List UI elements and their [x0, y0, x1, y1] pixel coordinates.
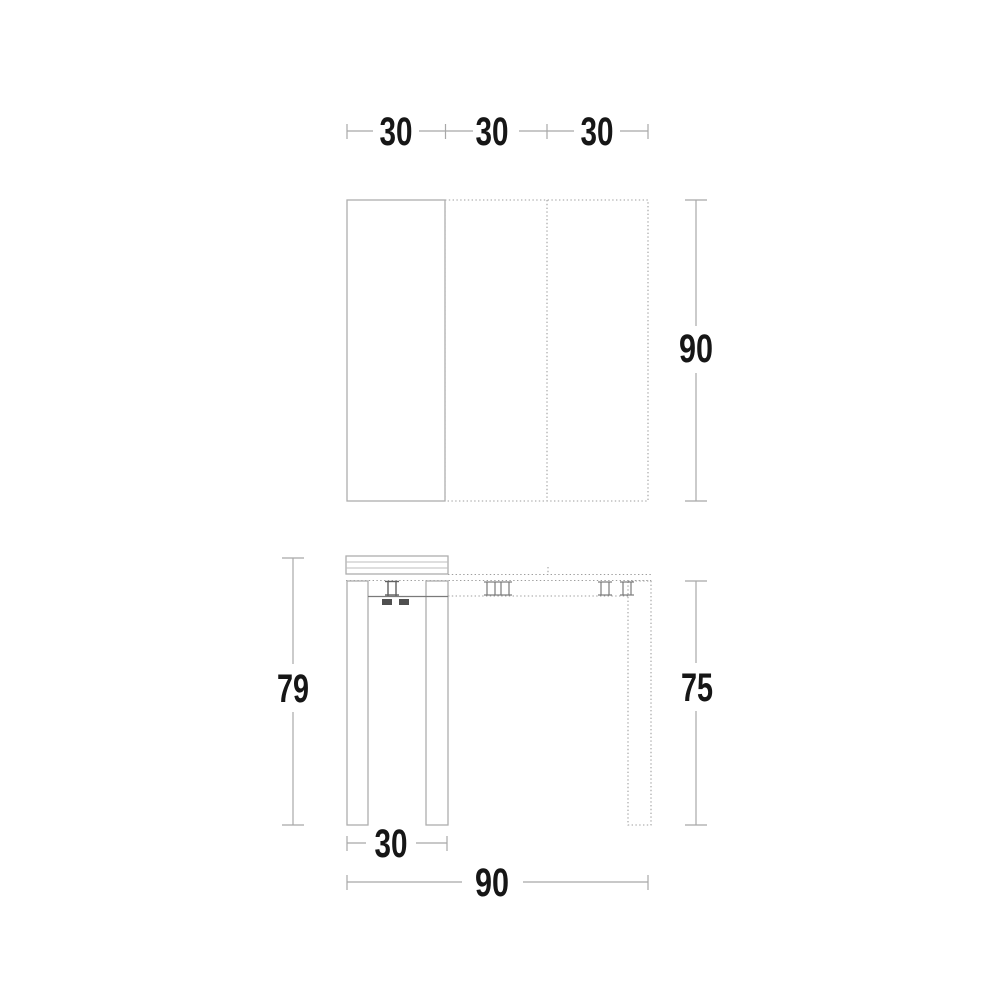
- dim-closed-width: 30: [347, 822, 447, 866]
- dim-top-leaf-widths: 30 30 30: [347, 110, 648, 154]
- drawing-stage: 30 30 30 90: [0, 0, 1000, 1000]
- technical-drawing-canvas: 30 30 30 90: [0, 0, 1000, 1000]
- top-view-extension-leaves: [445, 200, 648, 501]
- dim-label-closed-width: 30: [375, 822, 408, 866]
- front-right-leg: [426, 581, 448, 825]
- dim-label-depth: 90: [679, 327, 713, 371]
- front-left-leg: [347, 581, 368, 825]
- dim-total-height: 79: [277, 558, 309, 825]
- dim-label-leaf-width-2: 30: [476, 110, 509, 154]
- dim-label-leg-height: 75: [681, 666, 713, 710]
- dim-extended-width: 90: [347, 861, 648, 905]
- dim-leg-height: 75: [681, 581, 713, 825]
- extension-slide-brackets: [484, 582, 634, 595]
- dim-label-total-height: 79: [277, 667, 309, 711]
- front-extension-dotted: [346, 567, 651, 825]
- front-console-solid: [346, 556, 448, 825]
- dim-label-leaf-width-3: 30: [581, 110, 614, 154]
- front-view: 79 75 30 90: [277, 556, 713, 905]
- front-latch-detail: [382, 581, 409, 605]
- slide-bracket: [598, 582, 612, 595]
- latch-foot: [382, 599, 392, 605]
- latch-foot: [399, 599, 409, 605]
- dim-top-depth: 90: [679, 200, 713, 501]
- front-extension-leg: [628, 581, 651, 825]
- slide-bracket: [498, 582, 512, 595]
- dim-label-extended-width: 90: [475, 861, 509, 905]
- front-tabletop: [346, 556, 448, 574]
- top-view-solid-leaf: [347, 200, 445, 501]
- dim-label-leaf-width-1: 30: [380, 110, 413, 154]
- top-view: 30 30 30 90: [347, 110, 713, 501]
- slide-bracket: [484, 582, 498, 595]
